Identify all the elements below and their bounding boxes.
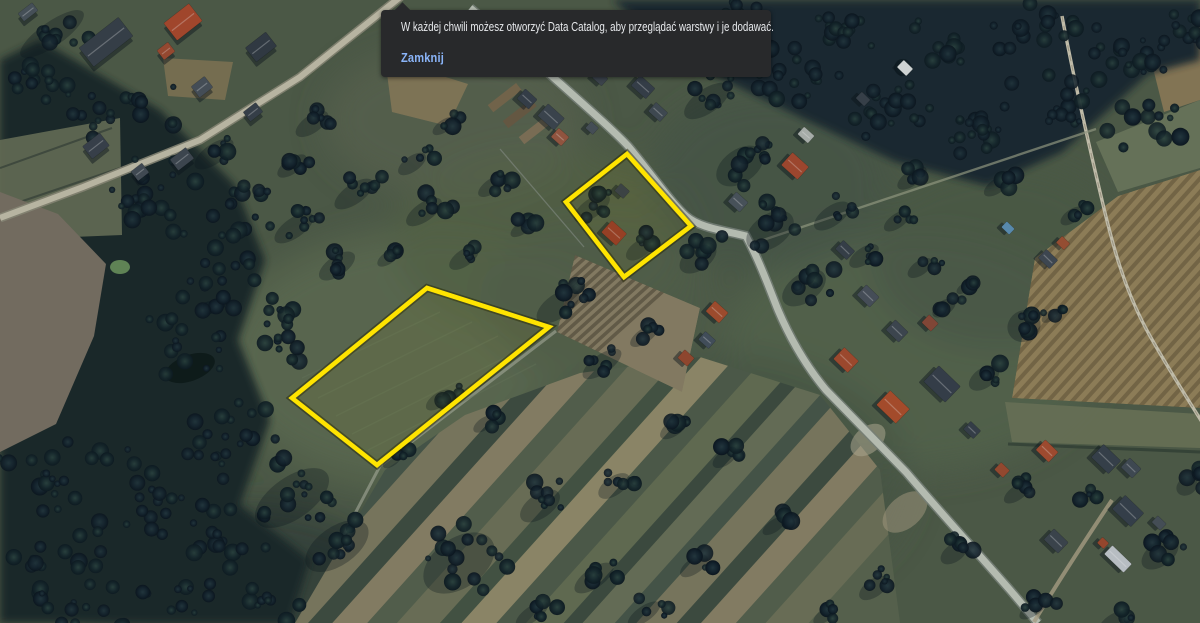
satellite-imagery[interactable] — [0, 0, 1200, 623]
close-notification-link[interactable]: Zamknij — [401, 50, 444, 65]
atmosphere-tint — [0, 0, 1200, 623]
app-window: W każdej chwili możesz otworzyć Data Cat… — [0, 0, 1200, 623]
notification-toast: W każdej chwili możesz otworzyć Data Cat… — [381, 10, 771, 77]
notification-message: W każdej chwili możesz otworzyć Data Cat… — [401, 19, 774, 36]
